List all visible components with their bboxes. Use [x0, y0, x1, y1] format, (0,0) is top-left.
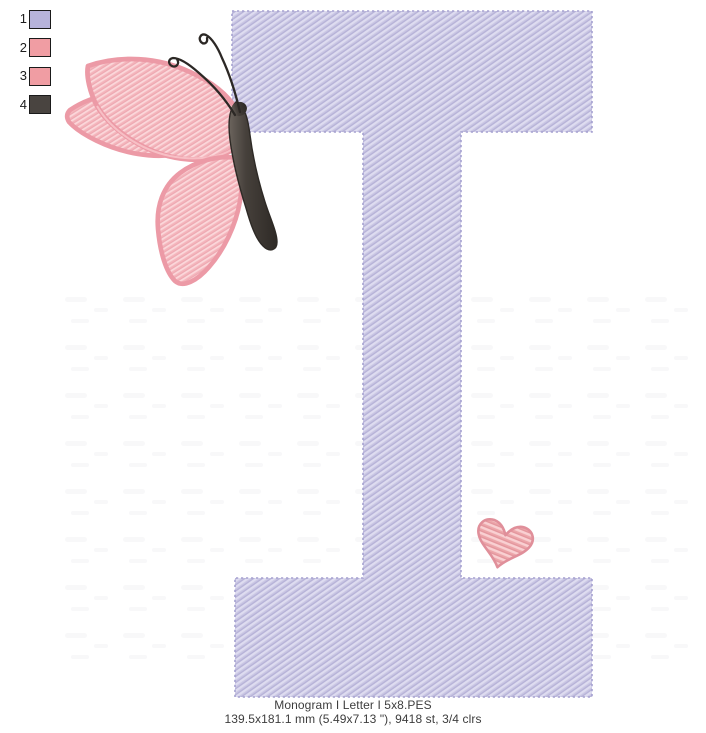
thread-number: 3: [13, 67, 27, 85]
thread-color-row: 1: [13, 10, 51, 28]
thread-number: 1: [13, 10, 27, 28]
thread-swatch-pink: [29, 38, 51, 57]
file-stats: 139.5x181.1 mm (5.49x7.13 "), 9418 st, 3…: [0, 713, 706, 727]
thread-color-row: 2: [13, 39, 51, 57]
thread-swatch-pink: [29, 67, 51, 86]
embroidery-preview-canvas: 1 2 3 4 Monogram I Letter I 5x8.PES 1: [0, 0, 706, 733]
thread-number: 2: [13, 39, 27, 57]
file-info-caption: Monogram I Letter I 5x8.PES 139.5x181.1 …: [0, 699, 706, 726]
file-name: Monogram I Letter I 5x8.PES: [0, 699, 706, 713]
thread-color-row: 4: [13, 96, 51, 114]
thread-color-legend: 1 2 3 4: [13, 10, 51, 114]
embroidery-preview-image: [0, 0, 706, 733]
thread-number: 4: [13, 96, 27, 114]
thread-swatch-dark: [29, 95, 51, 114]
thread-swatch-lavender: [29, 10, 51, 29]
thread-color-row: 3: [13, 67, 51, 85]
butterfly-lower-wing: [158, 157, 242, 284]
